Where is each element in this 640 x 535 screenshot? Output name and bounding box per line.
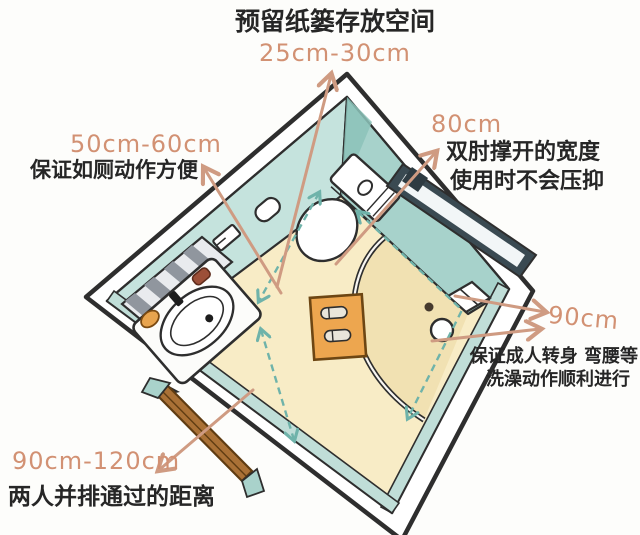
slipper-icon [321, 306, 348, 319]
shower-radius-label-2: 洗澡动作顺利进行 [482, 370, 630, 390]
bath-mat-icon [310, 294, 366, 359]
toilet-side-label: 保证如厕动作方便 [22, 159, 206, 183]
knob-icon [425, 303, 434, 312]
bathroom-dimension-diagram: 预留纸篓存放空间 25cm-30cm 50cm-60cm 保证如厕动作方便 80… [0, 0, 640, 535]
elbow-width-label-1: 双肘撑开的宽度 [446, 141, 600, 166]
shower-radius-dim: 90cm [547, 302, 620, 334]
elbow-width-dim: 80cm [431, 111, 502, 137]
shower-radius-label-1: 保证成人转身 弯腰等 [468, 347, 638, 367]
elbow-width-label-2: 使用时不会压抑 [450, 170, 604, 195]
door-passage-dim: 90cm-120cm [12, 448, 180, 474]
slipper-icon [324, 329, 351, 342]
trash-space-dim: 25cm-30cm [170, 40, 500, 66]
door-passage-label: 两人并排通过的距离 [8, 485, 215, 511]
toilet-side-dim: 50cm-60cm [70, 131, 220, 157]
trash-space-label: 预留纸篓存放空间 [170, 8, 500, 36]
